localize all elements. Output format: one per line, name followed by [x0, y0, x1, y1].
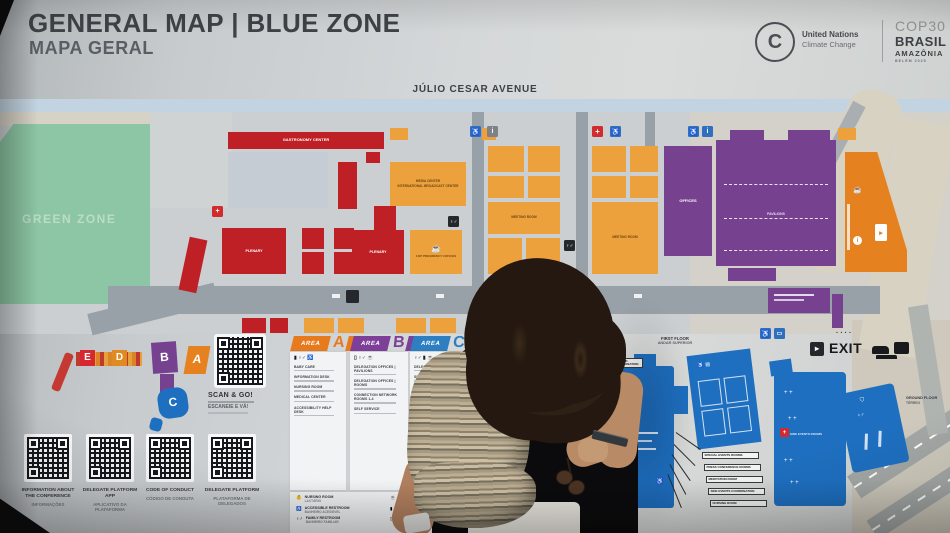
avenue-label: JÚLIO CESAR AVENUE	[0, 84, 950, 95]
building-block	[788, 130, 830, 141]
bus-icon: ▭	[774, 328, 785, 339]
building-block	[838, 128, 856, 140]
first-aid-icon: +	[592, 126, 603, 137]
car-icon	[872, 346, 889, 354]
building-side-events-ground: + + + + + + + + + SIDE EVENTS ROOMS	[774, 372, 846, 506]
coffee-icon: ☕	[853, 186, 862, 194]
callout-label: SIDE EVENTS COORDINATION	[708, 488, 765, 495]
minimap-area-e: E	[80, 350, 95, 366]
exit-label: EXIT	[829, 340, 862, 356]
pavilions-label: PAVILIONS	[716, 212, 836, 216]
building-block	[528, 146, 560, 172]
page-title: GENERAL MAP | BLUE ZONE	[28, 8, 400, 39]
building-block	[769, 359, 793, 377]
building-block	[270, 318, 288, 333]
callout-label: PRESS CONFERENCE ROOMS	[704, 464, 761, 471]
qr-label: DELEGATE PLATFORMPLATAFORMA DE DELEGADOS	[202, 488, 262, 506]
minimap-area-d: D	[112, 350, 127, 366]
building-meeting-rooms-2: MEETING ROOM	[592, 202, 658, 274]
page-subtitle: MAPA GERAL	[29, 38, 154, 59]
photo-corner-top-left	[0, 0, 14, 36]
beige-block	[150, 112, 232, 208]
building-block	[730, 130, 764, 141]
building-plenary-east: PLENARY	[352, 230, 404, 274]
unfccc-c-icon: C	[768, 31, 782, 54]
unfccc-logo: C	[755, 22, 795, 62]
bus-stop-mark	[634, 294, 642, 298]
qr-code-of-conduct	[146, 434, 194, 482]
entrance-door-icon: ▸	[875, 224, 887, 241]
ground-floor-label: GROUND FLOOR TÉRREO	[906, 396, 940, 405]
building-block	[728, 268, 776, 281]
coffee-icon: ☕	[431, 245, 441, 254]
green-zone-label: GREEN ZONE	[22, 212, 116, 226]
building-meeting-rooms-1: MEETING ROOM	[488, 202, 560, 234]
area-a-banner: AREA A	[292, 334, 356, 352]
accessibility-icon: ♿	[688, 126, 699, 137]
exit-dashes: ····	[836, 330, 853, 337]
object-in-left-hand	[403, 512, 432, 533]
qr-label: INFORMATION ABOUT THE CONFERENCEINFORMAÇ…	[18, 488, 78, 507]
bus-stop-mark	[436, 294, 444, 298]
building-block	[630, 176, 658, 198]
building-block	[302, 228, 324, 249]
exit-door-icon: ▸	[810, 342, 824, 356]
info-icon: i	[702, 126, 713, 137]
qr-label: CODE OF CONDUCTCÓDIGO DE CONDUTA	[140, 488, 200, 501]
elevator-icon: ♿ ▤	[697, 361, 710, 368]
accessibility-icon: ♿	[470, 126, 481, 137]
building-block	[832, 294, 843, 328]
accessibility-icon: ♿	[760, 328, 771, 339]
first-aid-icon: +	[780, 428, 789, 437]
building-block	[592, 176, 626, 198]
callout-label: NURSING ROOM	[710, 500, 767, 507]
minimap-area-c: C	[156, 386, 190, 420]
logo-divider	[882, 20, 883, 62]
kiosk-icon	[346, 290, 359, 303]
area-a-list: ▮ ♀♂ ♿ BABY CARE INFORMATION DESK NURSIN…	[290, 352, 346, 490]
building-block	[242, 318, 266, 333]
area-b-list: ▯ ♀♂ ☕ DELEGATION OFFICES | PAVILIONS DE…	[350, 352, 408, 490]
cop30-logo: COP30 BRASIL AMAZÔNIA BELÉM 2025	[895, 18, 950, 63]
building-block	[334, 228, 354, 249]
building-block	[338, 318, 364, 333]
scan-and-go-qr	[214, 334, 266, 388]
qr-delegate-platform	[208, 434, 256, 482]
person-tote-bag-lower	[414, 462, 536, 528]
avenue-band	[0, 99, 950, 112]
info-icon: i	[487, 126, 498, 137]
building-block	[396, 318, 426, 333]
building-cop-presidency: ☕ COP PRESIDENCY OFFICES	[410, 230, 462, 274]
building-pavilions-hall: PAVILIONS	[716, 140, 836, 266]
minimap-area-b: B	[151, 341, 178, 374]
scan-and-go-label: SCAN & GO! ESCANEIE E VÁ!	[208, 392, 272, 414]
building-block	[366, 152, 380, 163]
info-icon: i	[853, 236, 862, 245]
person-hair-lower	[474, 302, 626, 406]
open-area	[228, 152, 328, 208]
side-events-label: SIDE EVENTS ROOMS	[790, 432, 822, 436]
area-b-banner: AREA B	[352, 334, 416, 352]
building-block	[334, 252, 354, 274]
building-block	[390, 128, 408, 140]
qr-delegate-app	[86, 434, 134, 482]
qr-information	[24, 434, 72, 482]
building-block	[302, 252, 324, 274]
building-block	[528, 176, 560, 198]
bus-stop-mark	[332, 294, 340, 298]
building-block	[430, 318, 456, 333]
building-upper-rooms: ♿ ▤	[687, 348, 762, 449]
callout-label: MEDITATION ROOM	[706, 476, 763, 483]
bus-icon	[894, 342, 909, 354]
building-offices: OFFICES	[664, 146, 712, 256]
minimap-area-a: A	[184, 346, 211, 374]
building-block	[488, 176, 524, 198]
qr-label: DELEGATE PLATFORM APPAPLICATIVO DA PLATA…	[80, 488, 140, 512]
building-reception-strip	[768, 288, 830, 313]
photo-of-venue-map: GENERAL MAP | BLUE ZONE MAPA GERAL C Uni…	[0, 0, 950, 533]
building-block	[304, 318, 334, 333]
building-block	[592, 146, 626, 172]
building-block	[630, 146, 658, 172]
callout-label: SPECIAL EVENTS ROOMS	[702, 452, 759, 459]
restroom-icon: ♀♂	[448, 216, 459, 227]
building-block	[338, 162, 357, 209]
building-block	[488, 146, 524, 172]
building-plenary-west: PLENARY	[222, 228, 286, 274]
sunglasses	[554, 458, 594, 508]
restroom-icon: ♀♂	[564, 240, 575, 251]
first-aid-icon: +	[212, 206, 223, 217]
green-zone: GREEN ZONE	[0, 124, 150, 304]
accessibility-icon: ♿	[610, 126, 621, 137]
unfccc-wordmark: United Nations Climate Change	[802, 30, 858, 49]
street-v2	[576, 112, 588, 288]
building-gastronomy-center: GASTRONOMY CENTER	[228, 132, 384, 149]
building-media-center: MEDIA CENTER INTERNATIONAL BROADCAST CEN…	[390, 162, 466, 206]
minimap: E D B A C	[56, 336, 226, 432]
